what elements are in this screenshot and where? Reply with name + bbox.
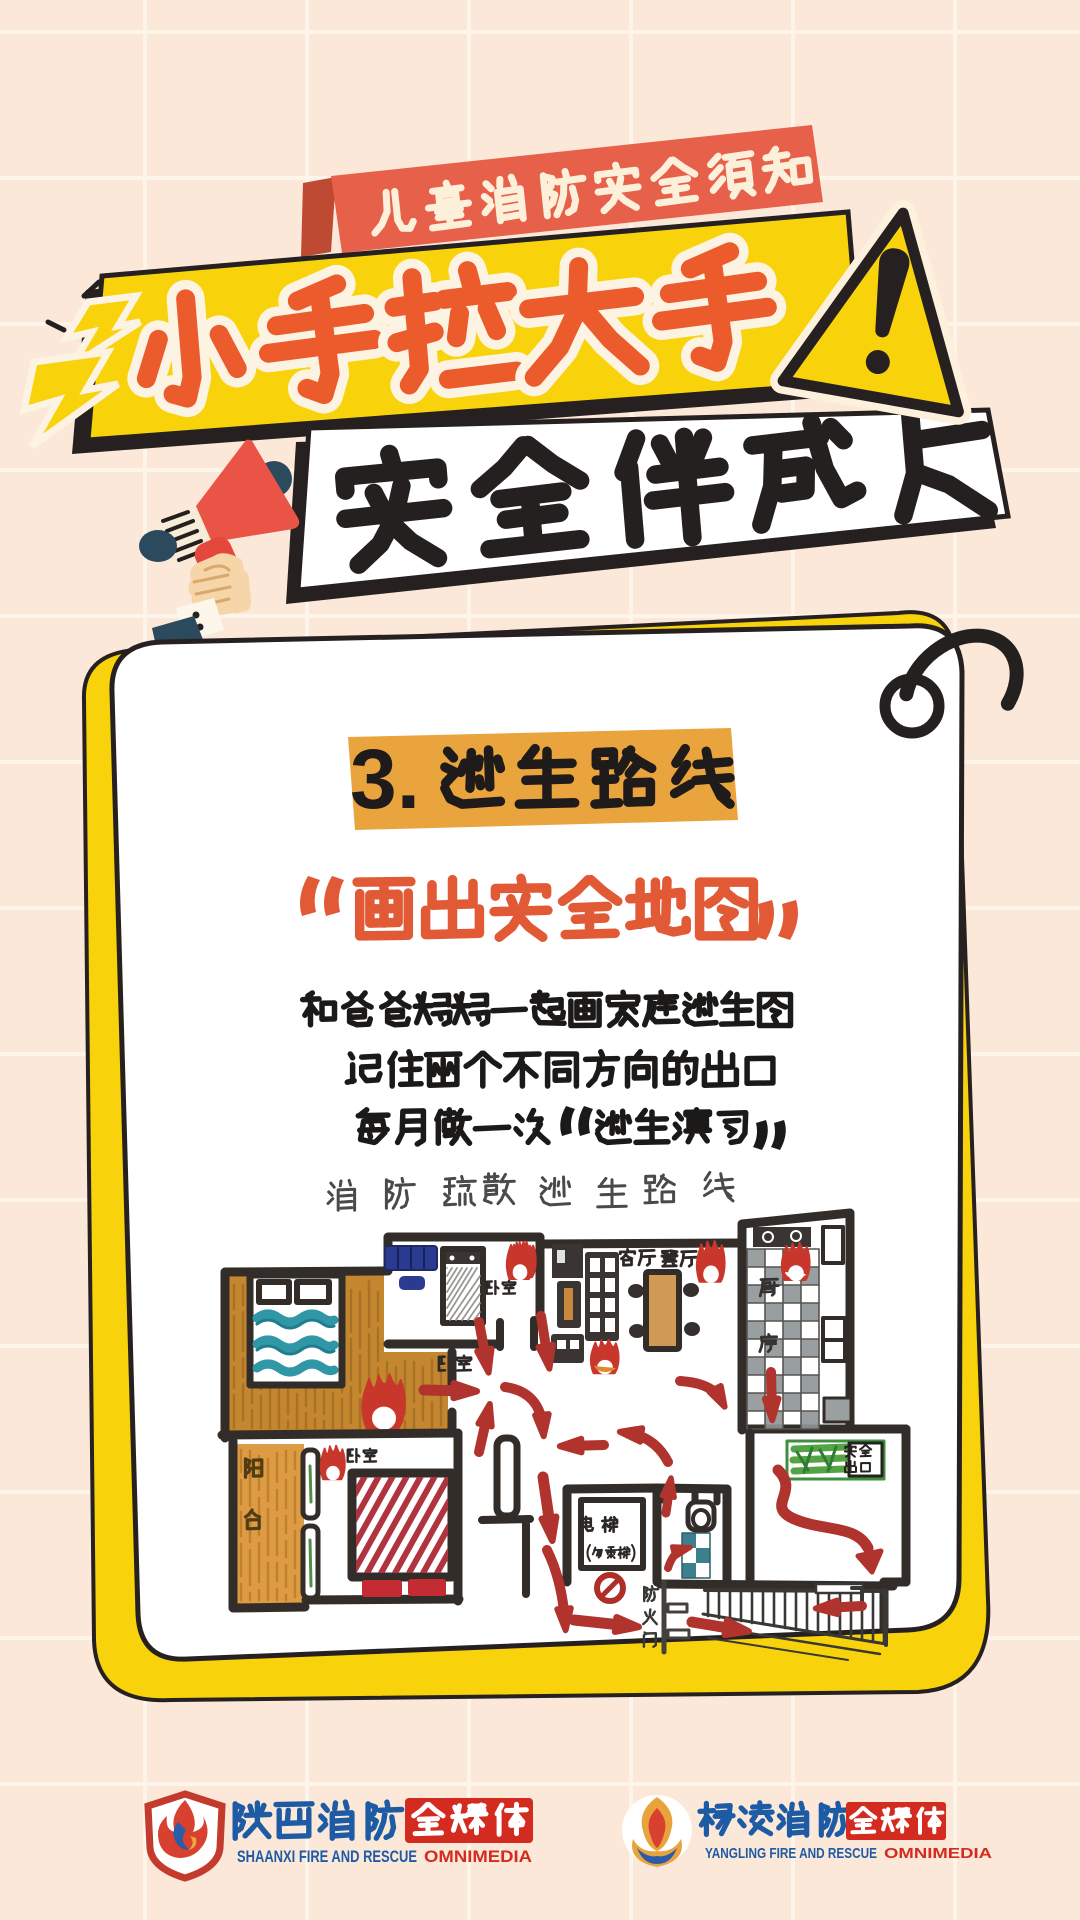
- svg-text:YANGLING FIRE AND RESCUE: YANGLING FIRE AND RESCUE: [705, 1845, 877, 1862]
- svg-text:OMNIMEDIA: OMNIMEDIA: [424, 1847, 532, 1866]
- svg-text:OMNIMEDIA: OMNIMEDIA: [884, 1845, 992, 1862]
- svg-text:3.: 3.: [350, 732, 420, 826]
- svg-text:SHAANXI FIRE AND RESCUE: SHAANXI FIRE AND RESCUE: [237, 1847, 417, 1866]
